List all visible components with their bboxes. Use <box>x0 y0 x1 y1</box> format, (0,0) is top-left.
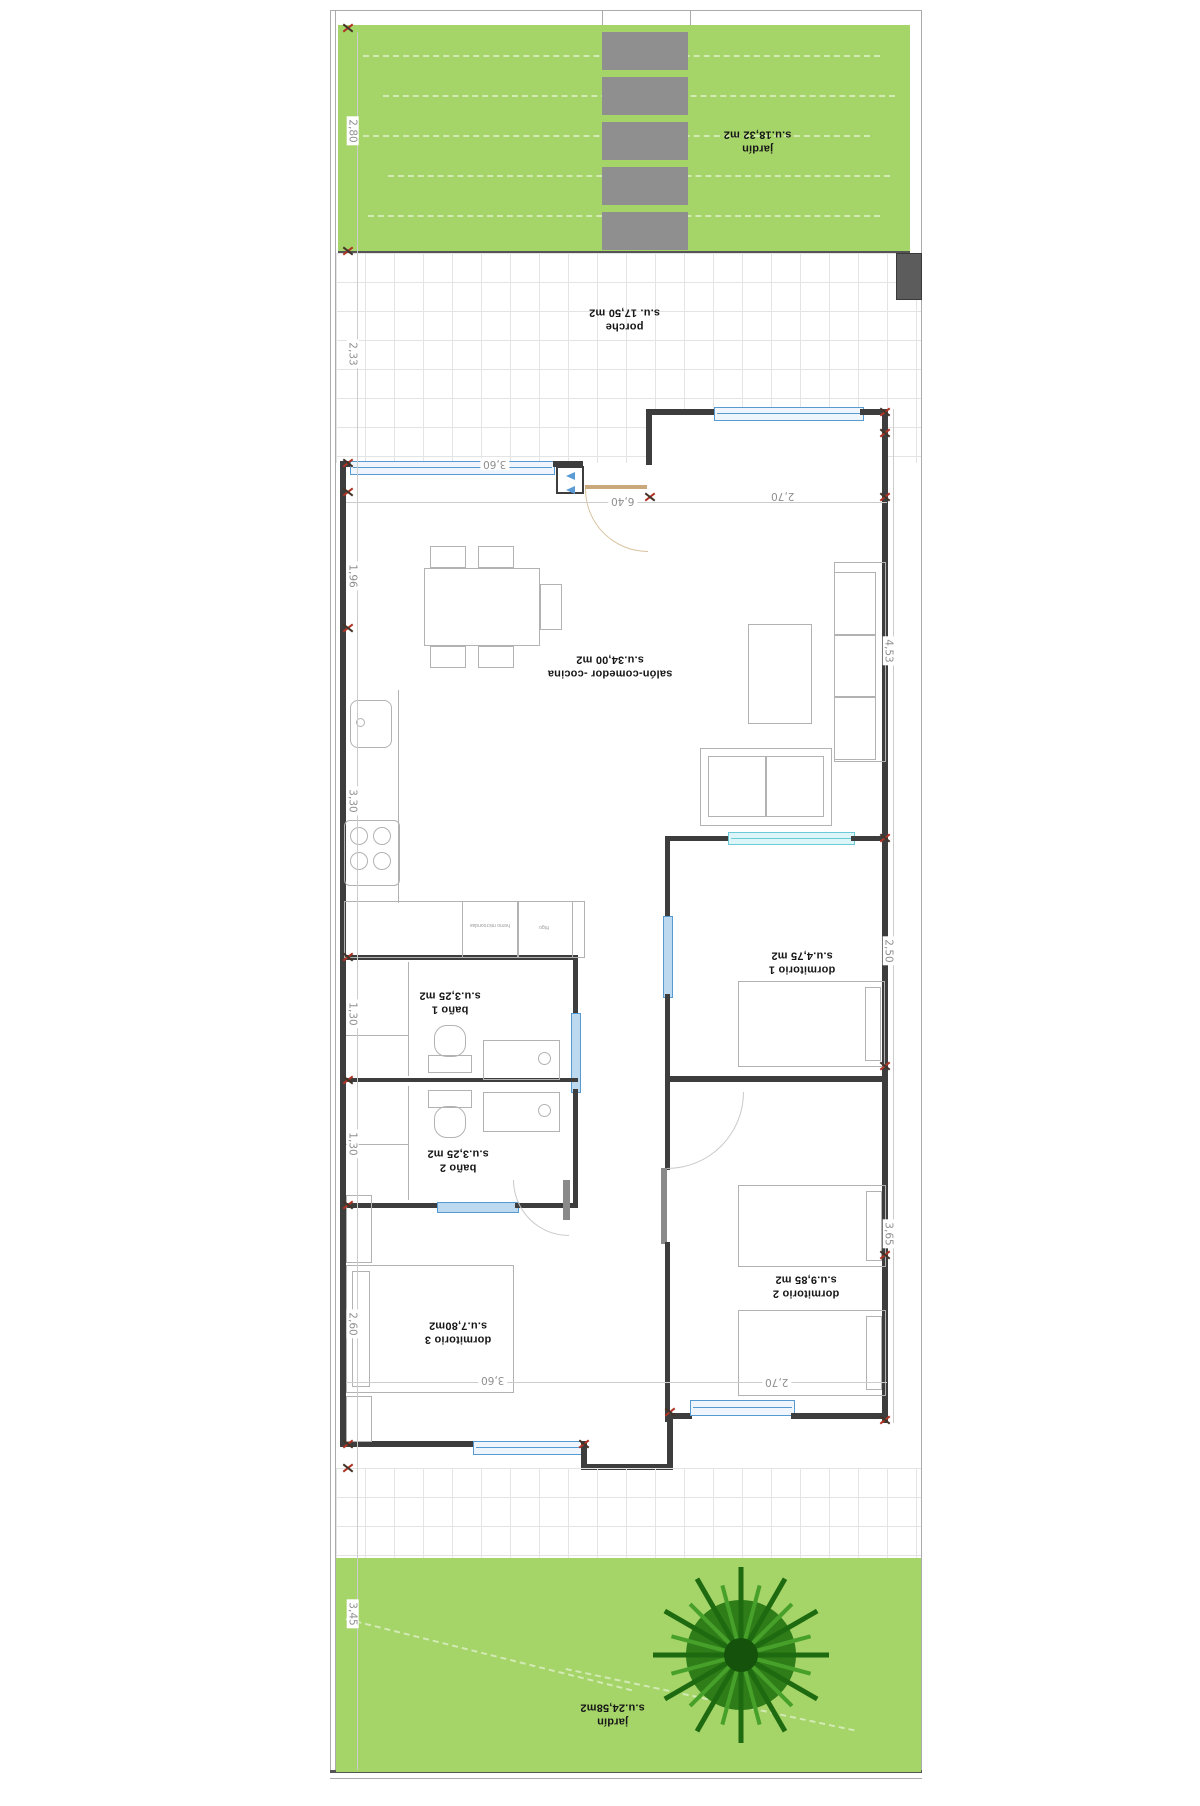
dorm2-door-arc <box>667 1092 744 1169</box>
dim-line-right <box>893 409 894 1423</box>
corner-marker <box>342 1199 354 1211</box>
room-area: s.u. 17,50 m2 <box>562 305 687 319</box>
corner-marker <box>879 832 891 844</box>
terrace-tiles <box>336 1468 921 1558</box>
garden-porch-edge <box>338 251 910 253</box>
burner <box>350 852 368 870</box>
dim-line-bottom <box>346 1382 887 1383</box>
living-label: salón-comedor -cocina s.u.34,00 m2 <box>545 652 675 681</box>
dorm3-nightstand <box>346 1396 372 1442</box>
dim-kitchen: 3,30 <box>347 786 359 815</box>
dim-total-width: 6,40 <box>608 495 637 507</box>
sofa-cushion <box>834 634 876 698</box>
bath2-label: baño 2 s.u.3,25 m2 <box>408 1146 508 1175</box>
plot-boundary-top <box>330 10 922 11</box>
bath2-door <box>437 1202 519 1213</box>
corner-marker <box>342 622 354 634</box>
burner <box>373 827 391 845</box>
dorm1-pillow <box>865 987 881 1061</box>
chair <box>430 546 466 568</box>
dim-dorm2-width: 2,70 <box>762 1376 791 1388</box>
wall-dorm1-left-b <box>665 994 670 1078</box>
corner-marker <box>342 457 354 469</box>
room-name: salón-comedor -cocina <box>545 666 675 680</box>
dim-line-left <box>357 32 358 1770</box>
paving-slat <box>602 122 688 160</box>
dorm1-bed <box>738 981 885 1067</box>
bath1-shower-edge <box>408 962 409 1076</box>
dorm3-door-arc <box>513 1180 569 1236</box>
room-name: baño 1 <box>400 1002 500 1016</box>
dim-porch: 2,33 <box>347 339 359 368</box>
wall-dorm1-dorm2 <box>665 1076 888 1082</box>
room-area: s.u.34,00 m2 <box>545 652 675 666</box>
paving-slat <box>602 167 688 205</box>
paving-slat <box>602 212 688 250</box>
dim-dorm3-width: 3,60 <box>478 1374 507 1386</box>
room-area: s.u.18,32 m2 <box>695 127 820 141</box>
paving-slat <box>602 32 688 70</box>
corner-marker <box>664 1406 676 1418</box>
dim-garden-top: 2,80 <box>347 116 359 145</box>
burner <box>350 827 368 845</box>
corner-marker <box>342 22 354 34</box>
dining-table <box>424 568 540 646</box>
coffee-table <box>748 624 812 724</box>
wall-hall-left-b <box>573 1089 578 1207</box>
dim-living-right: 4,53 <box>883 636 895 665</box>
chair <box>540 584 562 630</box>
chair <box>478 646 514 668</box>
plot-gate-left <box>602 10 603 25</box>
wall-dorm1-left-a <box>665 838 670 918</box>
dim-dorm3: 2,60 <box>347 1309 359 1338</box>
dorm2-bed <box>738 1185 886 1267</box>
fridge-label: frigo <box>520 924 568 930</box>
dim-entry-width: 2,70 <box>768 490 797 502</box>
chair <box>478 546 514 568</box>
wall-step-v2 <box>667 1413 673 1470</box>
room-name: baño 2 <box>408 1160 508 1174</box>
dorm3-window <box>473 1441 585 1455</box>
room-name: porche <box>562 319 687 333</box>
sofa-cushion <box>834 572 876 636</box>
corner-marker <box>342 951 354 963</box>
room-name: dormitorio 1 <box>752 962 852 976</box>
corner-marker <box>879 1249 891 1261</box>
porch-pillar <box>896 253 922 300</box>
corner-marker <box>578 1438 590 1450</box>
burner <box>373 852 391 870</box>
dorm2-door-leaf <box>661 1168 667 1244</box>
living-window-top <box>350 461 555 475</box>
dim-bath1: 1,30 <box>347 999 359 1028</box>
corner-marker <box>879 427 891 439</box>
wall-bump-top-left <box>646 409 716 415</box>
entry-bump-window <box>714 407 864 421</box>
sofa-cushion <box>765 756 824 817</box>
corner-marker <box>644 491 656 503</box>
room-area: s.u.9,85 m2 <box>756 1272 856 1286</box>
wall-dorm2-bottom-b <box>791 1413 888 1419</box>
bath1-shower-line <box>346 1035 408 1036</box>
tree-icon <box>648 1562 834 1748</box>
bath2-shower-edge <box>408 1086 409 1200</box>
dim-living-left: 1,96 <box>347 561 359 590</box>
entry-arrow-icon <box>566 486 575 494</box>
room-area: s.u.4,75 m2 <box>752 948 852 962</box>
dorm1-sliding-door <box>728 832 855 845</box>
plot-gate-right <box>690 10 691 25</box>
dim-living-window: 3,60 <box>480 458 509 470</box>
bath1-toilet-tank <box>428 1055 472 1073</box>
dorm1-door <box>663 916 673 998</box>
corner-marker <box>879 406 891 418</box>
garden-top-label: jardín s.u.18,32 m2 <box>695 127 820 156</box>
dorm2-bed <box>738 1310 886 1396</box>
entry-arrow-icon <box>566 472 575 480</box>
dim-garden-bottom: 3,45 <box>347 1599 359 1628</box>
grass-streak <box>346 1618 633 1691</box>
corner-marker <box>342 1074 354 1086</box>
wall-bump-left <box>646 411 652 465</box>
dorm2-label: dormitorio 2 s.u.9,85 m2 <box>756 1272 856 1301</box>
oven-microwave-label: horno microondas <box>465 922 515 928</box>
bath2-basin <box>538 1104 551 1117</box>
dim-dorm1: 2,50 <box>883 936 895 965</box>
sofa-cushion <box>708 756 767 817</box>
corner-marker <box>879 491 891 503</box>
room-name: dormitorio 2 <box>756 1286 856 1300</box>
room-area: s.u.3,25 m2 <box>400 988 500 1002</box>
floor-plan: jardín s.u.18,32 m2 porche s.u. 17,50 m2 <box>0 0 1200 1806</box>
corner-marker <box>342 1462 354 1474</box>
corner-marker <box>342 1438 354 1450</box>
corner-marker <box>342 245 354 257</box>
chair <box>430 646 466 668</box>
room-area: s.u.3,25 m2 <box>408 1146 508 1160</box>
sofa-cushion <box>834 696 876 760</box>
dim-bath2: 1,30 <box>347 1129 359 1158</box>
room-name: jardín <box>695 141 820 155</box>
porch-label: porche s.u. 17,50 m2 <box>562 305 687 334</box>
dorm2-window <box>690 1400 795 1416</box>
bath1-basin <box>538 1052 551 1065</box>
plot-boundary-bottom-thin <box>330 1778 922 1779</box>
fridge-unit: frigo <box>517 901 573 958</box>
plot-boundary-left-outer <box>330 10 331 1773</box>
bath1-label: baño 1 s.u.3,25 m2 <box>400 988 500 1017</box>
corner-marker <box>879 1060 891 1072</box>
wall-dorm2-left-b <box>665 1242 670 1422</box>
dim-dorm2: 3,65 <box>883 1219 895 1248</box>
corner-marker <box>342 486 354 498</box>
dorm1-label: dormitorio 1 s.u.4,75 m2 <box>752 948 852 977</box>
bath1-toilet-bowl <box>434 1025 466 1057</box>
bath2-toilet-bowl <box>434 1106 466 1138</box>
corner-marker <box>879 1414 891 1426</box>
dorm2-pillow <box>866 1316 882 1390</box>
paving-slat <box>602 77 688 115</box>
oven-microwave-unit: horno microondas <box>462 901 519 958</box>
wall-hall-left-a <box>573 955 578 1015</box>
wall-living-dorm1-a <box>665 836 730 841</box>
